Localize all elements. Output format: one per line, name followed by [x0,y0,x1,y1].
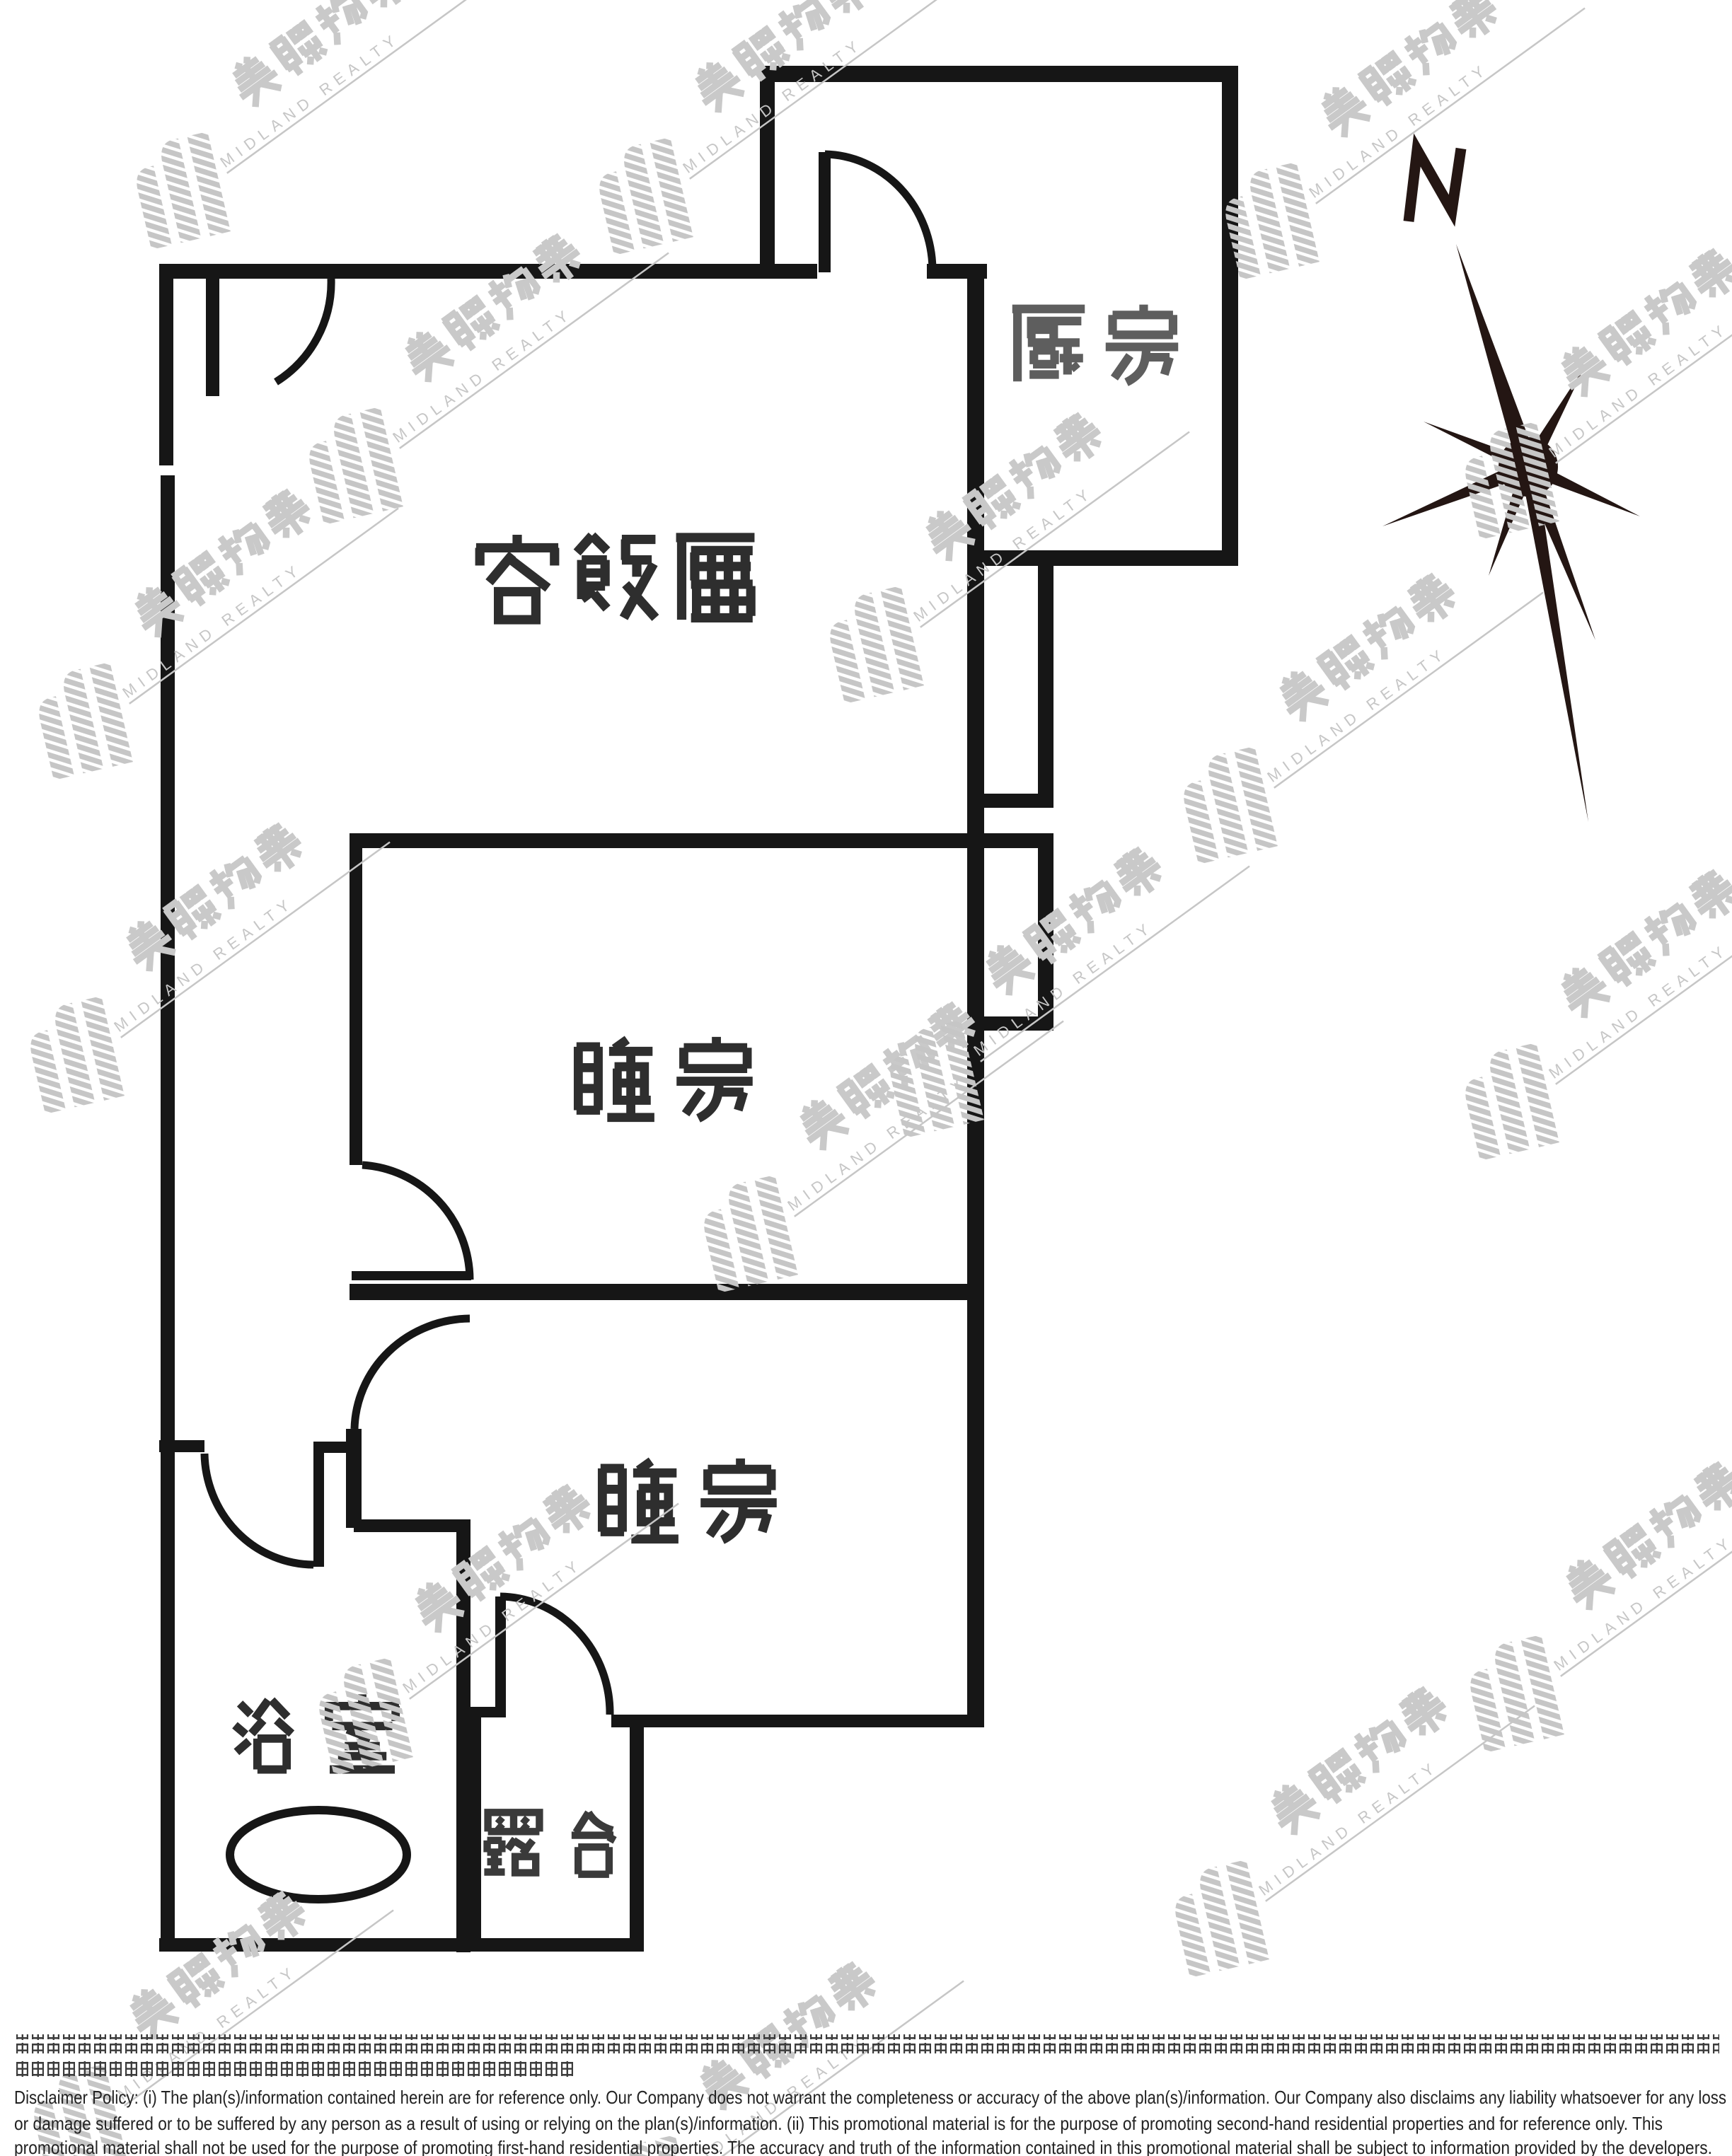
svg-text:Disclaimer Policy: (i) The pla: Disclaimer Policy: (i) The plan(s)/infor… [14,2087,1726,2108]
svg-text:or damage suffered or to be su: or damage suffered or to be suffered by … [14,2113,1663,2134]
svg-text:promotional material shall not: promotional material shall not be used f… [14,2137,1712,2156]
